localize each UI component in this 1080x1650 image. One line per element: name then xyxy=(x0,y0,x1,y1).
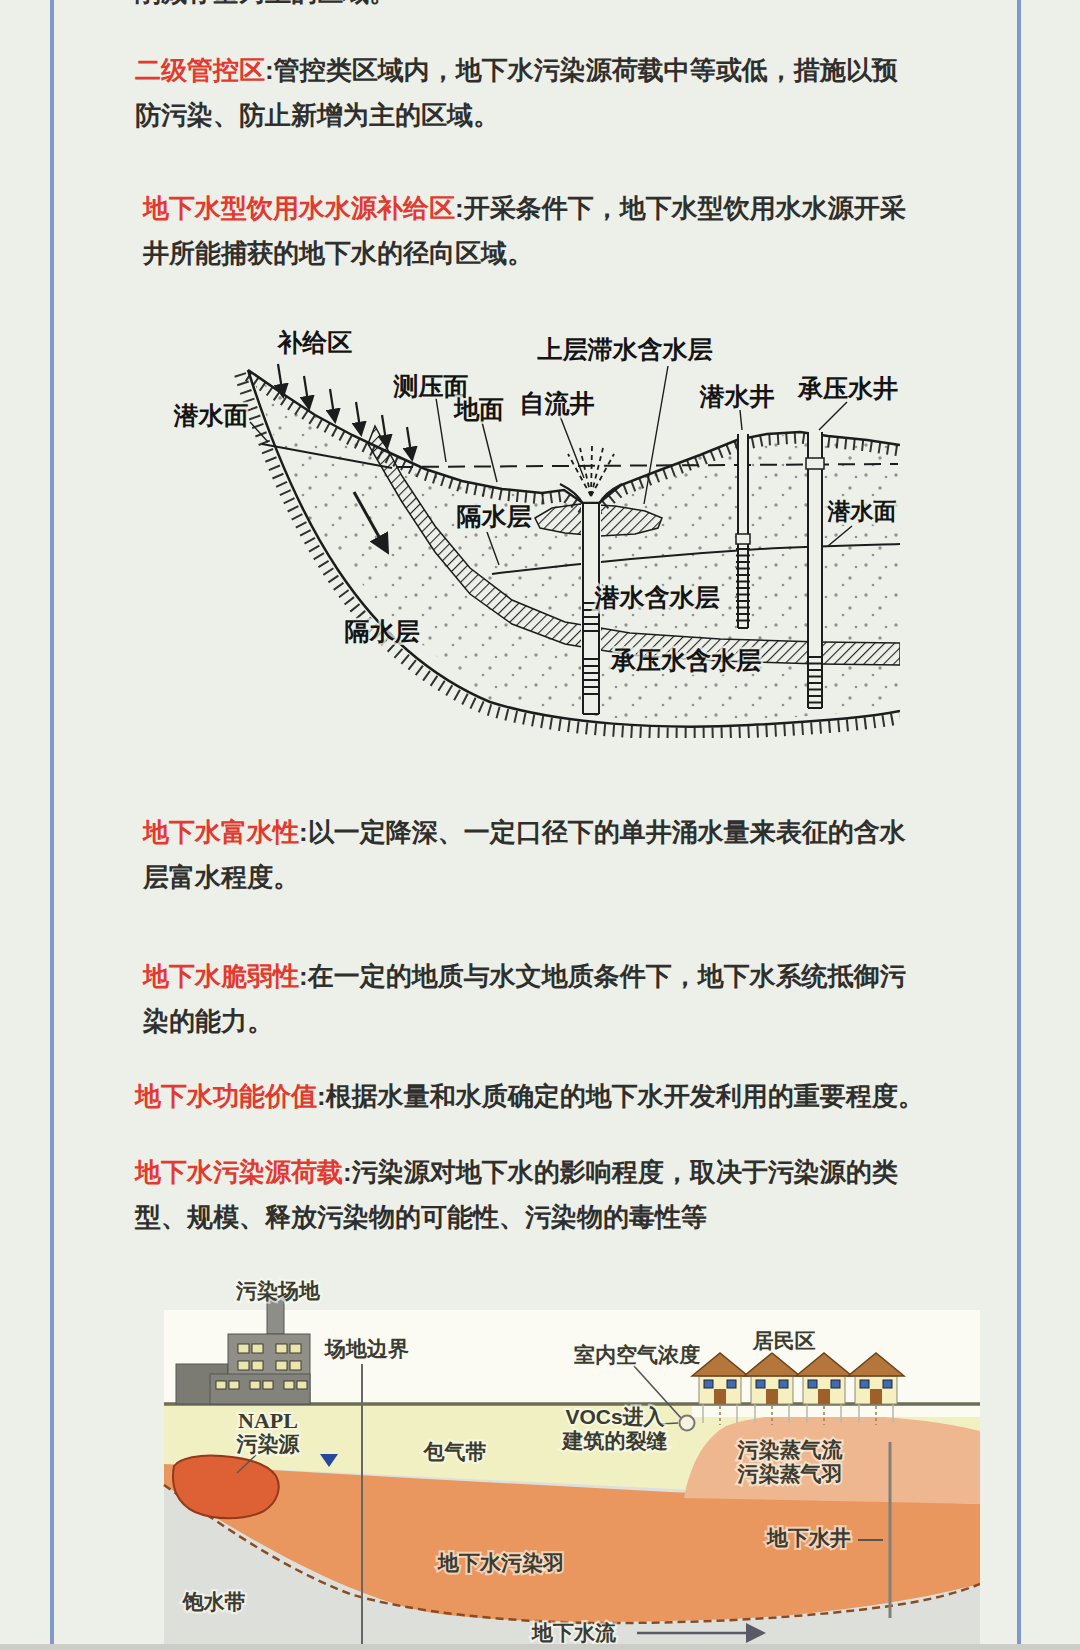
site-pollution-cross-section-diagram: 污染场地 场地边界 室内空气浓度 居民区 VOCs进入 建筑的裂缝 NAPL 污… xyxy=(110,1252,980,1650)
definition-text: 根据水量和水质确定的地下水开发利用的重要程度。 xyxy=(326,1081,924,1111)
napl-source-blob xyxy=(173,1455,279,1518)
crack-entry-point-icon xyxy=(680,1416,695,1431)
label-perched-aquifer: 上层滞水含水层 xyxy=(537,335,713,363)
bottom-edge-strip xyxy=(0,1644,1080,1650)
label-confined-aquifer: 承压水含水层 xyxy=(610,646,761,674)
definition-paragraph-functional-value: 地下水功能价值:根据水量和水质确定的地下水开发利用的重要程度。 xyxy=(135,1074,995,1119)
label-ground-surface: 地面 xyxy=(453,395,504,423)
label-indoor-air-concentration: 室内空气浓度 xyxy=(574,1343,700,1366)
colon: : xyxy=(299,817,308,847)
article-page: 削减存量为主的区域。 二级管控区:管控类区域内，地下水污染源荷载中等或低，措施以… xyxy=(0,0,1080,1650)
label-vocs-line2: 建筑的裂缝 xyxy=(561,1429,669,1452)
clipped-previous-line: 削减存量为主的区域。 xyxy=(135,0,935,15)
definition-paragraph-drinking-water-recharge-area: 地下水型饮用水水源补给区:开采条件下，地下水型饮用水水源开采井所能捕获的地下水的… xyxy=(143,186,925,276)
basement-strip xyxy=(692,1405,980,1417)
label-water-table-right: 潜水面 xyxy=(827,498,897,524)
definition-paragraph-vulnerability: 地下水脆弱性:在一定的地质与水文地质条件下，地下水系统抵御污染的能力。 xyxy=(143,954,925,1044)
label-vadose-zone: 包气带 xyxy=(423,1440,487,1463)
colon: : xyxy=(343,1157,352,1187)
label-site-boundary: 场地边界 xyxy=(323,1337,409,1360)
label-groundwater-well: 地下水井 xyxy=(766,1526,851,1549)
label-artesian-well: 自流井 xyxy=(520,389,595,417)
label-aquitard-upper: 隔水层 xyxy=(457,502,532,530)
label-phreatic-well: 潜水井 xyxy=(699,382,775,410)
label-vapor-plume: 污染蒸气羽 xyxy=(737,1462,843,1485)
label-groundwater-flow: 地下水流 xyxy=(531,1621,617,1644)
label-contaminated-site: 污染场地 xyxy=(235,1279,321,1302)
label-residential-area: 居民区 xyxy=(752,1329,816,1352)
label-napl: NAPL xyxy=(238,1408,298,1433)
factory-chimney xyxy=(267,1298,284,1334)
label-napl-source: 污染源 xyxy=(236,1432,301,1455)
aquifer-dotted-texture xyxy=(252,376,900,722)
label-phreatic-aquifer: 潜水含水层 xyxy=(594,583,720,611)
term-text: 地下水脆弱性 xyxy=(143,961,299,991)
label-vapor-flow: 污染蒸气流 xyxy=(737,1438,844,1461)
term-text: 地下水型饮用水水源补给区 xyxy=(143,193,455,223)
label-water-table-left: 潜水面 xyxy=(173,401,249,429)
definition-paragraph-pollution-source-load: 地下水污染源荷载:污染源对地下水的影响程度，取决于污染源的类型、规模、释放污染物… xyxy=(135,1150,917,1240)
definition-paragraph-secondary-control-zone: 二级管控区:管控类区域内，地下水污染源荷载中等或低，措施以预防污染、防止新增为主… xyxy=(135,48,917,138)
term-text: 地下水功能价值 xyxy=(135,1081,317,1111)
term-text: 二级管控区 xyxy=(135,55,265,85)
term-text: 地下水污染源荷载 xyxy=(135,1157,343,1187)
label-vocs-line1: VOCs进入 xyxy=(565,1405,665,1428)
label-groundwater-pollution-plume: 地下水污染羽 xyxy=(437,1551,564,1574)
label-aquitard-lower: 隔水层 xyxy=(345,617,420,645)
label-confined-well: 承压水井 xyxy=(797,374,898,402)
colon: : xyxy=(265,55,274,85)
colon: : xyxy=(455,193,464,223)
definition-paragraph-water-abundance: 地下水富水性:以一定降深、一定口径下的单井涌水量来表征的含水层富水程度。 xyxy=(143,810,925,900)
label-recharge-area: 补给区 xyxy=(277,328,353,356)
hydrogeology-cross-section-diagram: 补给区 潜水面 测压面 地面 自流井 上层滞水含水层 潜水井 承压水井 潜水面 … xyxy=(140,318,900,738)
label-saturated-zone: 饱水带 xyxy=(182,1590,246,1613)
colon: : xyxy=(317,1081,326,1111)
term-text: 地下水富水性 xyxy=(143,817,299,847)
confined-well xyxy=(806,432,824,710)
left-border-line xyxy=(50,0,54,1650)
right-border-line xyxy=(1017,0,1021,1650)
colon: : xyxy=(299,961,308,991)
phreatic-well xyxy=(736,434,750,630)
